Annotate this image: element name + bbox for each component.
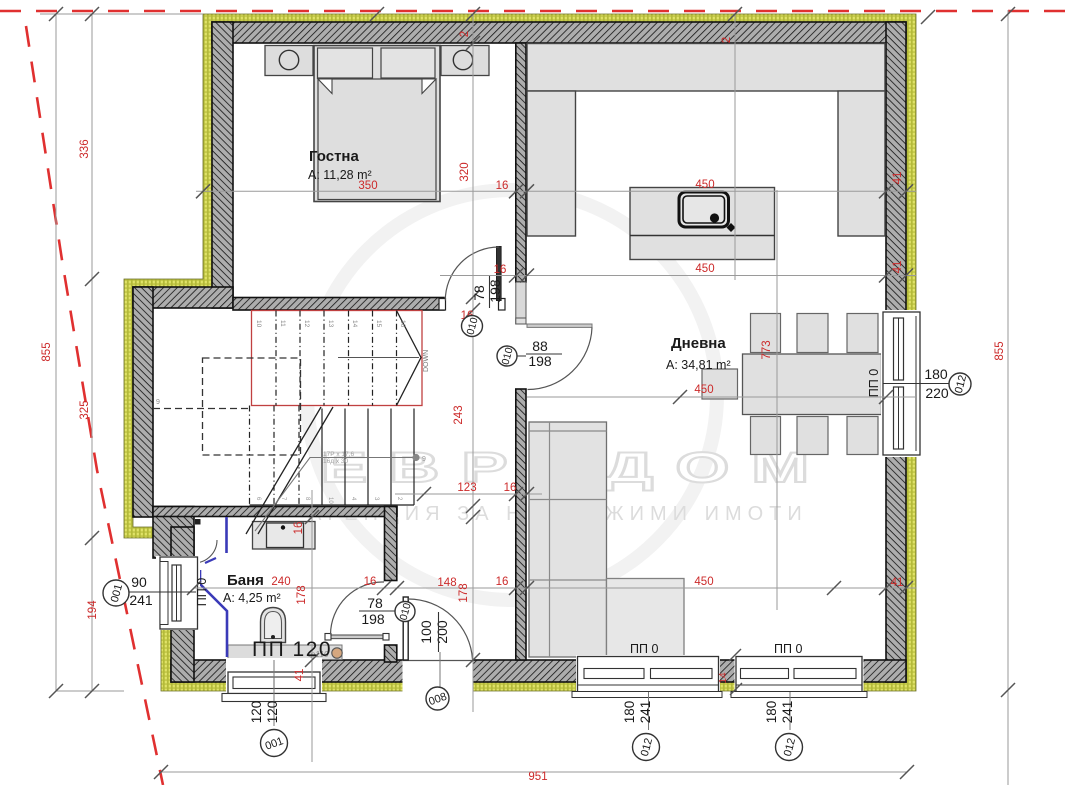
svg-text:41: 41 <box>892 261 904 274</box>
svg-text:16: 16 <box>504 482 517 494</box>
svg-text:2: 2 <box>459 31 471 37</box>
svg-text:200: 200 <box>434 620 450 644</box>
svg-text:16: 16 <box>364 576 377 588</box>
svg-text:78: 78 <box>367 595 383 611</box>
svg-text:123: 123 <box>457 482 476 494</box>
svg-text:243: 243 <box>453 405 465 424</box>
svg-text:120: 120 <box>265 701 280 724</box>
svg-text:320: 320 <box>459 162 471 181</box>
svg-text:14: 14 <box>351 320 358 328</box>
svg-text:ПП 0: ПП 0 <box>867 369 881 397</box>
svg-text:180: 180 <box>764 701 779 724</box>
svg-text:10: 10 <box>255 320 262 328</box>
svg-text:9: 9 <box>156 399 160 406</box>
svg-text:178: 178 <box>458 583 470 602</box>
svg-text:241: 241 <box>780 701 795 724</box>
svg-text:855: 855 <box>994 341 1006 360</box>
svg-text:450: 450 <box>694 384 713 396</box>
svg-text:11: 11 <box>279 320 286 327</box>
svg-text:198: 198 <box>361 611 385 627</box>
svg-text:220: 220 <box>925 385 949 401</box>
svg-text:194: 194 <box>87 600 99 620</box>
svg-text:78: 78 <box>471 285 487 301</box>
svg-text:Баня: Баня <box>227 572 264 589</box>
svg-text:ПП 0: ПП 0 <box>774 642 802 656</box>
svg-text:DOWN: DOWN <box>423 350 430 372</box>
svg-text:773: 773 <box>761 340 773 359</box>
svg-text:240: 240 <box>271 576 290 588</box>
svg-text:ПП 0: ПП 0 <box>195 578 209 606</box>
svg-text:15: 15 <box>375 320 382 328</box>
svg-text:9: 9 <box>422 456 426 463</box>
svg-text:120: 120 <box>249 701 264 724</box>
svg-text:450: 450 <box>695 179 714 191</box>
svg-text:13: 13 <box>327 320 334 328</box>
svg-text:16: 16 <box>494 264 507 276</box>
svg-text:16: 16 <box>496 576 509 588</box>
svg-text:855: 855 <box>41 342 53 361</box>
svg-text:180: 180 <box>924 366 948 382</box>
svg-text:16: 16 <box>293 522 305 535</box>
svg-text:198: 198 <box>528 353 552 369</box>
svg-text:88: 88 <box>532 338 548 354</box>
svg-text:Дневна: Дневна <box>671 335 726 352</box>
svg-text:14: 14 <box>718 672 729 684</box>
svg-text:148: 148 <box>437 577 456 589</box>
svg-text:100: 100 <box>418 620 434 644</box>
svg-text:450: 450 <box>694 576 713 588</box>
svg-text:А: 4,25 m²: А: 4,25 m² <box>223 591 281 605</box>
svg-text:ПП 120: ПП 120 <box>252 638 332 661</box>
svg-text:241: 241 <box>638 701 653 724</box>
svg-text:16д x 30: 16д x 30 <box>323 458 348 465</box>
svg-text:350: 350 <box>358 180 377 192</box>
svg-text:41: 41 <box>294 669 306 682</box>
svg-text:450: 450 <box>695 263 714 275</box>
svg-text:17Р x 17,6: 17Р x 17,6 <box>323 451 354 458</box>
svg-text:178: 178 <box>296 585 308 604</box>
svg-text:16: 16 <box>399 320 406 328</box>
svg-text:180: 180 <box>622 701 637 724</box>
svg-text:951: 951 <box>528 771 547 783</box>
svg-text:41: 41 <box>892 172 904 185</box>
svg-text:12: 12 <box>303 320 310 328</box>
svg-text:А: 34,81 m²: А: 34,81 m² <box>666 358 731 372</box>
svg-text:ПП 0: ПП 0 <box>630 642 658 656</box>
svg-text:336: 336 <box>79 139 91 158</box>
svg-text:10: 10 <box>327 497 333 504</box>
svg-text:16: 16 <box>496 180 509 192</box>
svg-text:41: 41 <box>891 577 904 589</box>
svg-text:2: 2 <box>721 37 733 43</box>
svg-text:90: 90 <box>131 574 147 590</box>
svg-text:Гостна: Гостна <box>309 148 359 165</box>
svg-text:325: 325 <box>79 400 91 419</box>
svg-text:241: 241 <box>129 592 153 608</box>
